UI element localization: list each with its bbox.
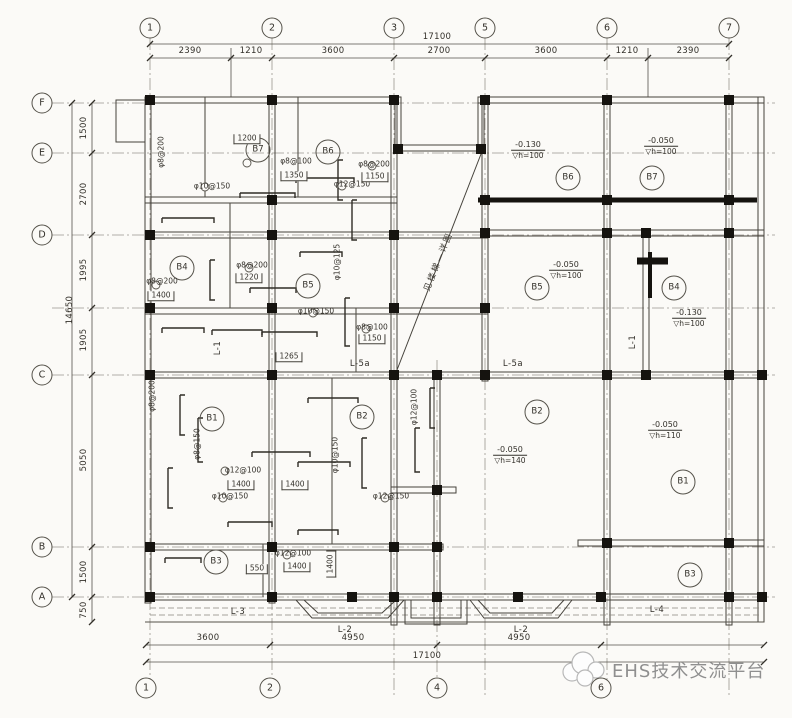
room-label-B6: B6 (316, 140, 341, 165)
segment-dim: 1350 (280, 171, 307, 181)
dim-top-segment: 3600 (535, 47, 558, 56)
segment-dim: 1150 (361, 172, 388, 182)
segment-dim: 1265 (275, 352, 302, 362)
axis-left-D: D (32, 225, 53, 246)
axis-top-6: 6 (597, 18, 618, 39)
elevation-mark: -0.050▽h=100 (549, 261, 583, 280)
floor-plan-drawing: 1235671246FEDCBA171002390121036002700360… (0, 0, 792, 718)
elevation-value: -0.050 (549, 261, 583, 271)
beam-label-L-4: L-4 (650, 606, 665, 615)
dim-bottom-total: 17100 (413, 652, 442, 661)
room-label-B2: B2 (350, 405, 375, 430)
dim-left-segment: 1500 (80, 117, 89, 140)
stair-detail-note: 见楼梯—详图 (423, 231, 454, 293)
rebar-note: φ10@150 (194, 182, 230, 190)
annotation-layer: 1235671246FEDCBA171002390121036002700360… (0, 0, 792, 718)
elevation-value: -0.130 (672, 309, 706, 319)
elevation-value: -0.050 (493, 446, 527, 456)
rebar-note: φ8@100 (356, 323, 388, 331)
dim-bottom-segment: 4950 (342, 634, 365, 643)
elevation-value: -0.050 (644, 137, 678, 147)
room-label-B7: B7 (640, 166, 665, 191)
elevation-depth: ▽h=100 (644, 148, 678, 156)
segment-dim: 1150 (358, 334, 385, 344)
axis-top-7: 7 (719, 18, 740, 39)
rebar-note: φ8@200 (358, 160, 390, 168)
beam-label-L-1: L-1 (629, 335, 638, 350)
elevation-mark: -0.050▽h=110 (648, 421, 682, 440)
rebar-note: φ8@200 (148, 380, 156, 412)
segment-dim: 1200 (233, 134, 260, 144)
elevation-mark: -0.130▽h=100 (511, 141, 545, 160)
room-label-B5: B5 (525, 276, 550, 301)
dim-left-segment: 2700 (80, 183, 89, 206)
axis-left-F: F (32, 93, 53, 114)
rebar-note: φ8@200 (236, 261, 268, 269)
rebar-note: φ12@100 (410, 389, 418, 425)
axis-bottom-6: 6 (591, 678, 612, 699)
dim-left-segment: 1905 (80, 329, 89, 352)
room-label-B1: B1 (200, 407, 225, 432)
dim-left-segment: 750 (80, 601, 89, 618)
dim-top-segment: 2700 (428, 47, 451, 56)
beam-label-L-5a: L-5a (503, 360, 523, 369)
dim-left-segment: 1995 (80, 259, 89, 282)
rebar-note: φ10@125 (333, 244, 341, 280)
room-label-B3: B3 (678, 563, 703, 588)
rebar-note: φ12@100 (225, 466, 261, 474)
segment-dim: 1220 (235, 273, 262, 283)
axis-top-3: 3 (384, 18, 405, 39)
axis-left-E: E (32, 143, 53, 164)
axis-bottom-2: 2 (260, 678, 281, 699)
room-label-B5: B5 (296, 274, 321, 299)
room-label-B1: B1 (671, 470, 696, 495)
dim-top-segment: 1210 (616, 47, 639, 56)
axis-bottom-1: 1 (136, 678, 157, 699)
axis-left-B: B (32, 537, 53, 558)
segment-dim: 1400 (283, 562, 310, 572)
rebar-note: φ12@150 (373, 492, 409, 500)
dim-bottom-segment: 4950 (508, 634, 531, 643)
axis-left-A: A (32, 587, 53, 608)
dim-left-segment: 5050 (80, 449, 89, 472)
segment-dim: 1400 (147, 291, 174, 301)
axis-left-C: C (32, 365, 53, 386)
dim-left-total: 14650 (66, 296, 75, 325)
beam-label-L-1: L-1 (214, 341, 223, 356)
segment-dim: 550 (246, 564, 268, 574)
beam-label-L-3: L-3 (231, 608, 246, 617)
axis-top-1: 1 (140, 18, 161, 39)
rebar-note: φ8@150 (193, 428, 201, 460)
elevation-depth: ▽h=100 (672, 320, 706, 328)
room-label-B3: B3 (204, 550, 229, 575)
axis-top-2: 2 (262, 18, 283, 39)
rebar-note: φ10@150 (298, 307, 334, 315)
elevation-value: -0.050 (648, 421, 682, 431)
axis-bottom-4: 4 (427, 678, 448, 699)
room-label-B6: B6 (556, 166, 581, 191)
elevation-value: -0.130 (511, 141, 545, 151)
beam-label-L-2: L-2 (514, 626, 529, 635)
segment-dim: 1400 (281, 480, 308, 490)
dim-top-segment: 2390 (179, 47, 202, 56)
dim-top-segment: 1210 (240, 47, 263, 56)
beam-label-L-2: L-2 (338, 626, 353, 635)
room-label-B2: B2 (525, 400, 550, 425)
dim-left-segment: 1500 (80, 561, 89, 584)
dim-top-segment: 2390 (677, 47, 700, 56)
elevation-depth: ▽h=140 (493, 457, 527, 465)
elevation-mark: -0.130▽h=100 (672, 309, 706, 328)
elevation-depth: ▽h=110 (648, 432, 682, 440)
rebar-note: φ10@150 (212, 492, 248, 500)
watermark: EHS技术交流平台 (612, 657, 765, 683)
rebar-note: φ8@100 (280, 157, 312, 165)
rebar-note: φ8@200 (157, 136, 165, 168)
beam-label-L-5a: L-5a (350, 360, 370, 369)
watermark-text: EHS技术交流平台 (612, 661, 765, 682)
elevation-depth: ▽h=100 (511, 152, 545, 160)
elevation-depth: ▽h=100 (549, 272, 583, 280)
segment-dim: 1400 (326, 550, 336, 577)
room-label-B4: B4 (662, 276, 687, 301)
segment-dim: 1400 (227, 480, 254, 490)
dim-top-segment: 3600 (322, 47, 345, 56)
elevation-mark: -0.050▽h=100 (644, 137, 678, 156)
dim-top-total: 17100 (423, 33, 452, 42)
rebar-note: φ8@200 (146, 277, 178, 285)
rebar-note: φ12@100 (275, 549, 311, 557)
rebar-note: φ10@150 (331, 437, 339, 473)
dim-bottom-segment: 3600 (197, 634, 220, 643)
elevation-mark: -0.050▽h=140 (493, 446, 527, 465)
axis-top-5: 5 (475, 18, 496, 39)
